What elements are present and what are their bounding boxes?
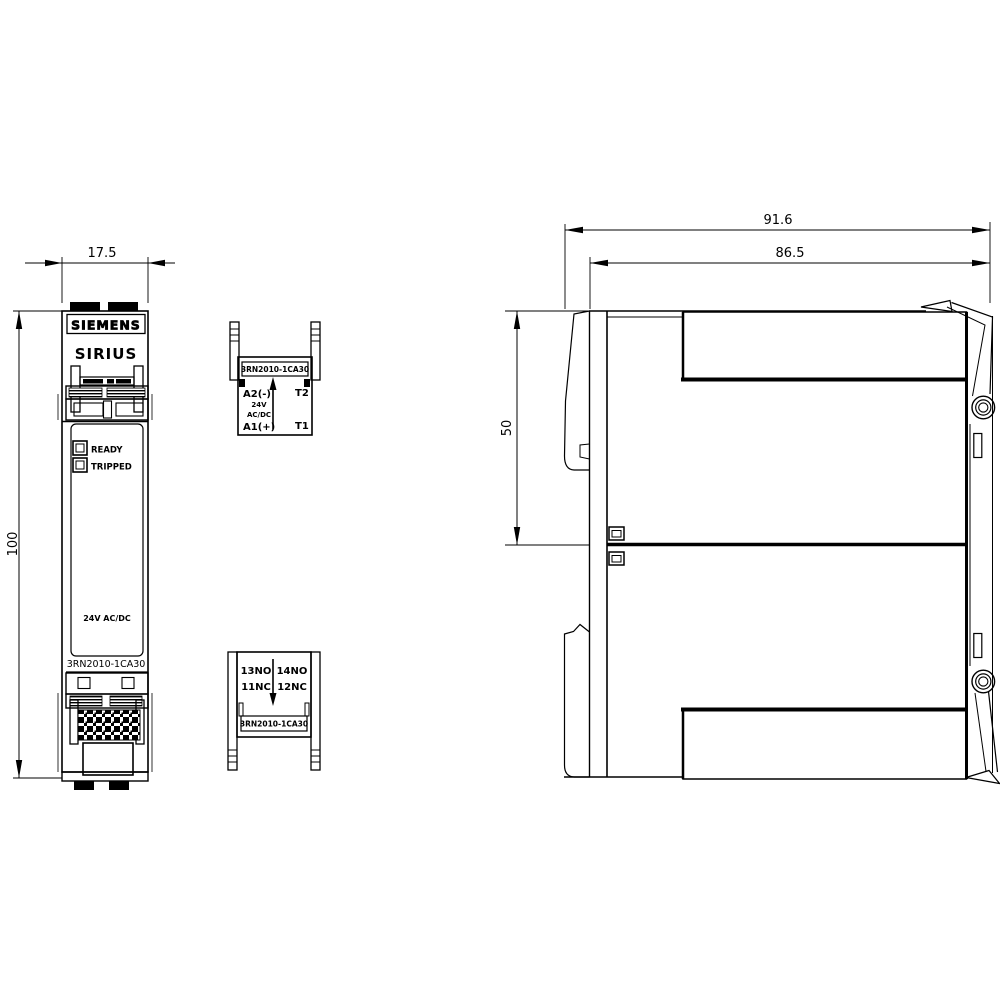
ready-label: READY [91,446,123,456]
side-view [564,301,1000,784]
sirius-label: SIRIUS [75,345,138,363]
top-mount-tab [108,302,138,311]
block-nub [304,379,310,387]
block-nub [239,703,243,716]
rail-mark [116,379,131,384]
arrowhead [148,260,165,266]
terminal-12nc-label: 12NC [277,682,307,693]
cover-window [78,678,90,689]
latch-pivot-hole [979,677,988,686]
rail-mark [107,379,114,384]
terminal-t1-label: T1 [295,421,309,432]
up-arrow-icon [270,377,277,390]
extension-lines [505,311,589,545]
arrowhead [972,227,990,233]
side-window [609,552,624,565]
arrowhead [16,311,22,329]
ready-led [73,441,87,455]
front-view: SIEMENS SIRIUS READY TRIPPED [58,302,152,790]
dim-side-total-label: 91.6 [764,213,793,228]
cover-window [116,403,143,416]
latch-slot [974,434,982,458]
technical-drawing: 17.5 100 SIEMENS SIRIUS [0,0,1000,1000]
dim-front-height: 100 [6,311,62,778]
dim-side-body-label: 86.5 [776,246,805,261]
cover-window [122,678,134,689]
latch-pivot-ring [976,400,991,415]
top-latch-tip [921,301,952,312]
tripped-led [73,458,87,472]
bottom-foot [109,781,129,790]
data-matrix-code [78,710,140,740]
tripped-led-inner [76,461,84,469]
terminal-screw [70,696,102,706]
voltage-label: 24V AC/DC [83,614,131,623]
terminal-screw [107,388,145,397]
arrowhead [16,760,22,778]
dim-side-total-width: 91.6 [565,213,990,309]
voltage-acdc-label: AC/DC [247,411,271,419]
bottom-latch-tip [966,771,1000,784]
extension-lines [62,257,148,303]
bottom-block-part-label: 3RN2010-1CA30 [240,720,308,729]
bottom-bar [62,772,148,781]
terminal-screw [69,388,102,397]
blank-label [83,743,133,775]
ready-led-inner [76,444,84,452]
part-number-label: 3RN2010-1CA30 [67,659,146,670]
terminal-screw [110,696,142,706]
siemens-logo: SIEMENS [71,318,141,333]
down-arrow-icon [270,693,277,706]
front-bottom-terminal [66,672,148,775]
terminal-a2-label: A2(-) [243,389,271,400]
rail-ridges [228,750,320,762]
terminal-a1-label: A1(+) [243,422,275,433]
clip-rail [228,652,237,770]
dim-side-upper-height: 50 [500,311,589,545]
dim-side-upper-label: 50 [500,420,515,437]
bottom-lever-edge [975,693,987,775]
arrowhead [972,260,990,266]
arrowhead [514,311,520,329]
top-mount-tab [70,302,100,311]
front-top-terminal [66,366,148,420]
terminal-14no-label: 14NO [277,666,308,677]
dim-front-height-label: 100 [6,532,21,557]
top-block [683,312,967,380]
voltage-24v-label: 24V [251,401,267,409]
dim-front-width-label: 17.5 [88,246,117,261]
arrowhead [514,527,520,545]
top-terminal-detail: 3RN2010-1CA30 A2(-) T2 24V AC/DC A1(+) T… [230,322,320,435]
clip-rail [311,652,320,770]
cover-latch [104,401,112,418]
extension-lines [565,222,990,309]
tripped-label: TRIPPED [91,463,132,473]
rail-mark [83,379,103,384]
cover-window [74,403,103,416]
bottom-terminal-wedge [565,625,590,778]
terminal-13no-label: 13NO [241,666,272,677]
bottom-foot [74,781,94,790]
arrowhead [45,260,62,266]
dim-front-width: 17.5 [25,246,175,303]
rail-ridges [230,329,320,341]
bottom-terminal-detail: 13NO 14NO 11NC 12NC 3RN2010-1CA30 [228,652,320,770]
top-terminal-wedge [565,311,590,470]
wedge-notch [580,444,590,459]
dim-side-body-width: 86.5 [590,246,990,309]
terminal-11nc-label: 11NC [241,682,271,693]
side-window-inner [612,531,621,538]
latch-slot [974,634,982,658]
side-window-inner [612,556,621,563]
block-nub [305,703,309,716]
terminal-cover [66,399,148,420]
latch-pivot-hole [979,403,988,412]
latch-pivot-ring [976,674,991,689]
status-leds: READY TRIPPED [73,441,132,473]
arrowhead [590,260,608,266]
bottom-block [683,709,967,779]
side-window [609,527,624,540]
block-nub [239,379,245,387]
arrowhead [565,227,583,233]
top-block-part-label: 3RN2010-1CA30 [241,365,309,374]
terminal-t2-label: T2 [295,388,309,399]
dimensional-drawing-page: 17.5 100 SIEMENS SIRIUS [0,0,1000,1000]
terminal-post [70,700,78,744]
